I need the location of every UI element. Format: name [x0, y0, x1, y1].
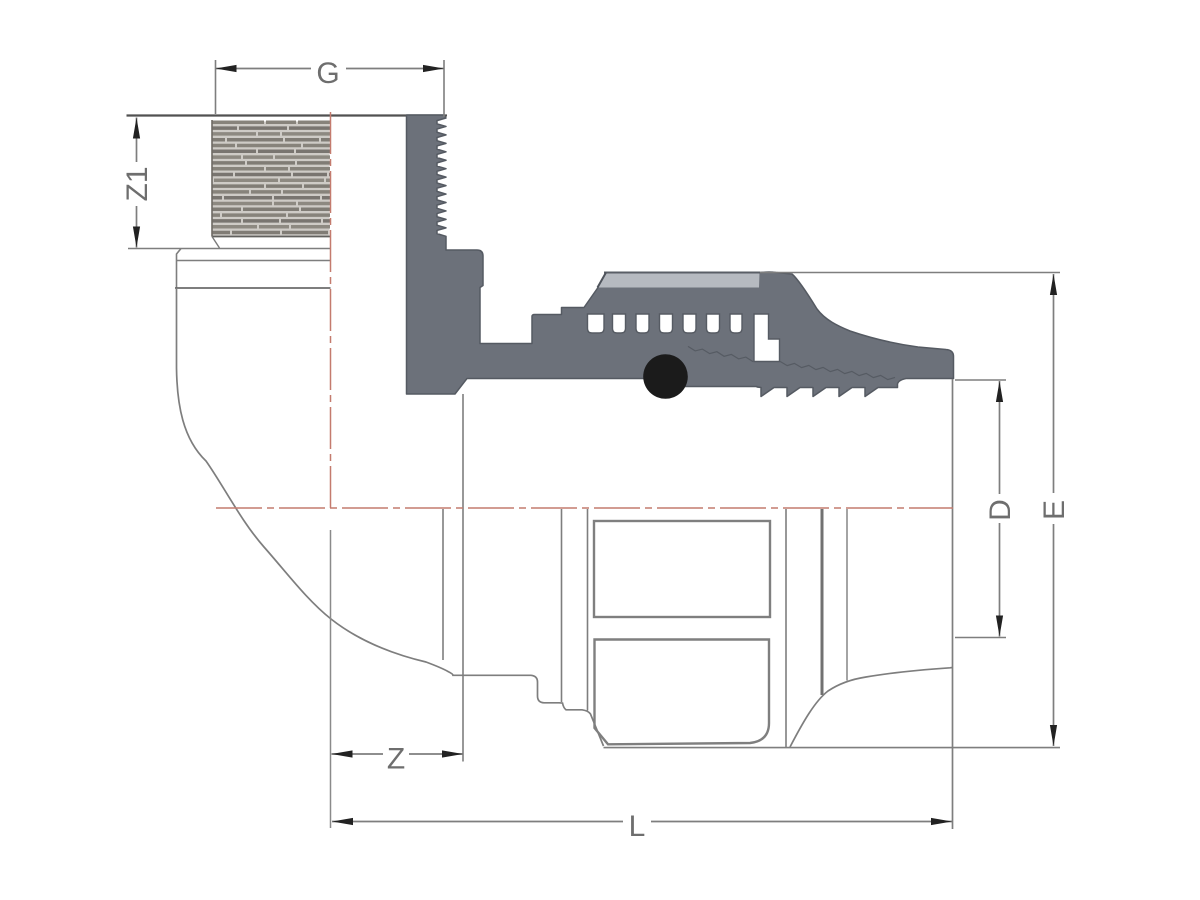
svg-text:Z: Z [387, 743, 405, 776]
svg-text:E: E [1038, 500, 1071, 520]
svg-text:L: L [629, 810, 646, 843]
svg-text:D: D [984, 499, 1017, 521]
svg-text:Z1: Z1 [121, 166, 154, 201]
svg-text:G: G [316, 57, 339, 90]
